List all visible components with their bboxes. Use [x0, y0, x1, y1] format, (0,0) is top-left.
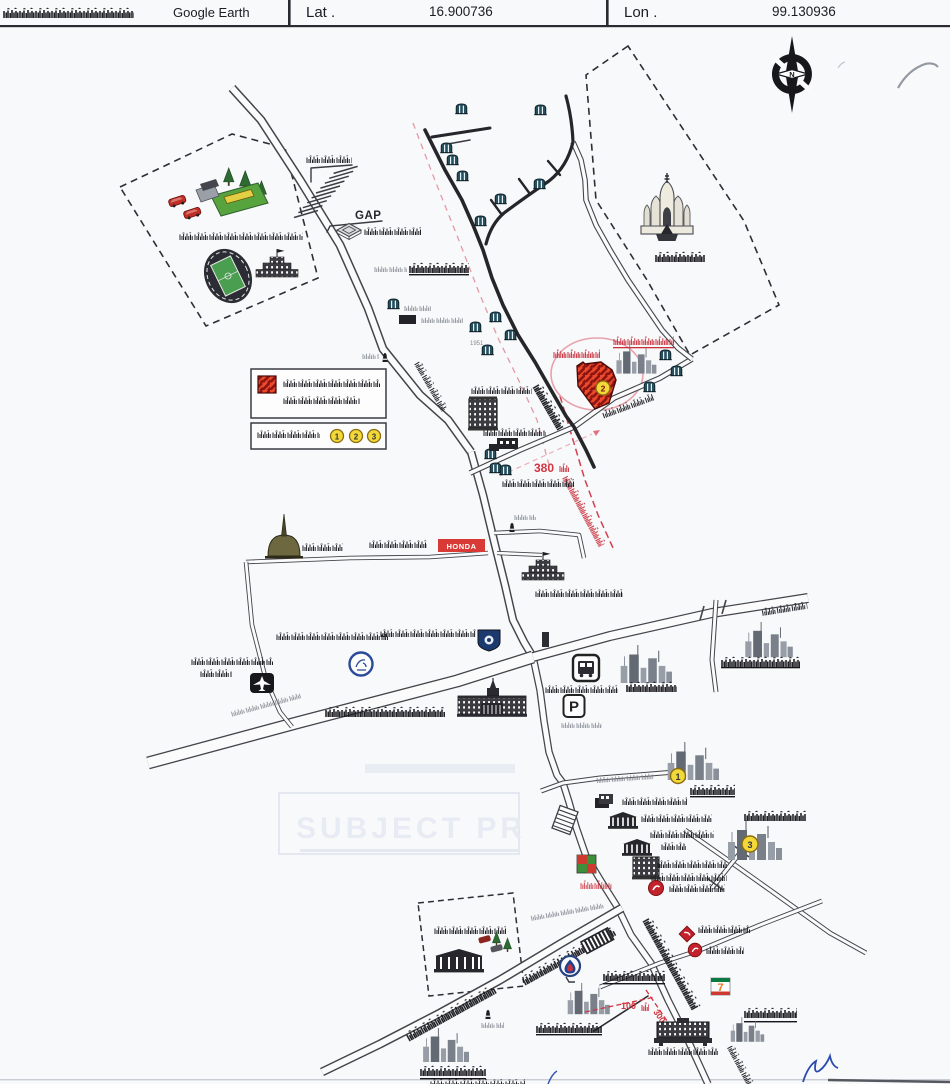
svg-text:P: P [569, 699, 579, 716]
svg-text:1951: 1951 [470, 341, 484, 347]
svg-text:SUBJECT PR: SUBJECT PR [296, 812, 526, 845]
svg-text:1: 1 [675, 772, 680, 782]
svg-text:N: N [789, 70, 794, 79]
svg-text:2: 2 [354, 433, 359, 442]
svg-text:100: 100 [621, 1001, 636, 1011]
svg-text:7: 7 [717, 982, 723, 994]
svg-text:16.900736: 16.900736 [429, 4, 493, 19]
svg-text:1: 1 [335, 433, 340, 442]
svg-text:Google Earth: Google Earth [173, 5, 250, 20]
svg-text:Lon .: Lon . [624, 4, 657, 21]
svg-text:99.130936: 99.130936 [772, 4, 836, 19]
svg-text:Lat .: Lat . [306, 4, 335, 21]
svg-text:380: 380 [534, 461, 554, 475]
svg-text:2: 2 [601, 384, 606, 394]
svg-text:GAP: GAP [355, 210, 381, 222]
svg-text:3: 3 [747, 840, 752, 850]
svg-text:HONDA: HONDA [447, 542, 477, 551]
svg-text:3: 3 [372, 433, 377, 442]
